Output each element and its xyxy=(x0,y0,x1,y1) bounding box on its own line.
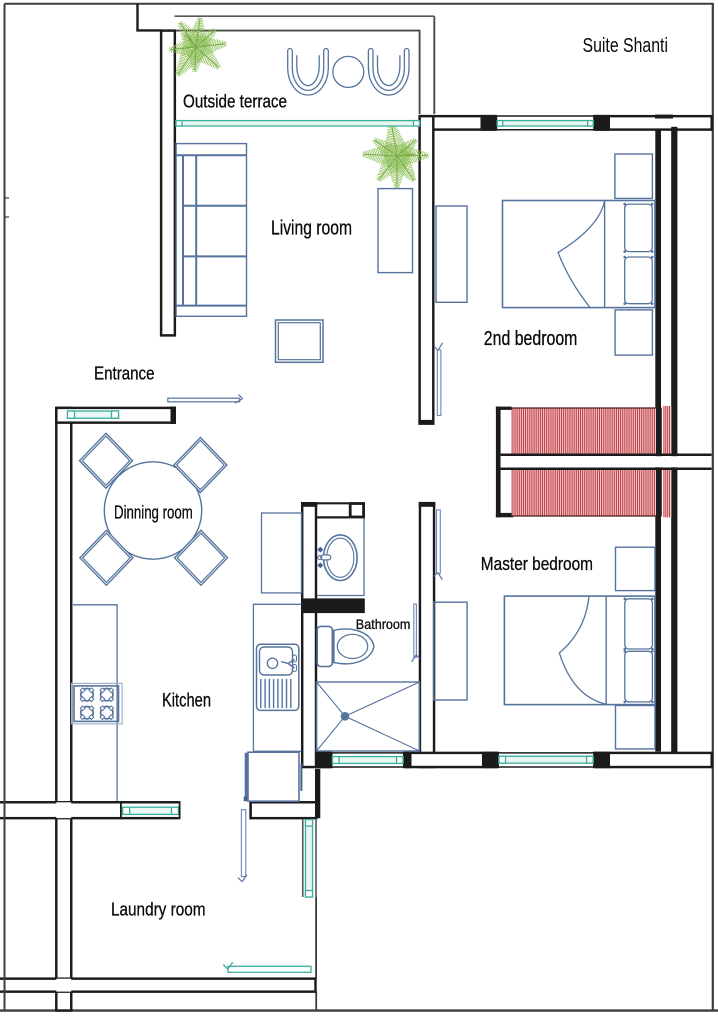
svg-text:Entrance: Entrance xyxy=(94,362,155,383)
svg-text:Outside terrace: Outside terrace xyxy=(183,91,287,112)
svg-text:2nd bedroom: 2nd bedroom xyxy=(484,328,578,350)
svg-text:Living room: Living room xyxy=(271,218,352,240)
svg-text:Dinning room: Dinning room xyxy=(114,502,193,522)
svg-text:Kitchen: Kitchen xyxy=(162,690,211,711)
svg-text:Suite Shanti: Suite Shanti xyxy=(583,34,669,57)
svg-text:Bathroom: Bathroom xyxy=(356,616,411,632)
svg-text:Laundry room: Laundry room xyxy=(111,899,206,920)
svg-text:Master bedroom: Master bedroom xyxy=(481,553,593,574)
